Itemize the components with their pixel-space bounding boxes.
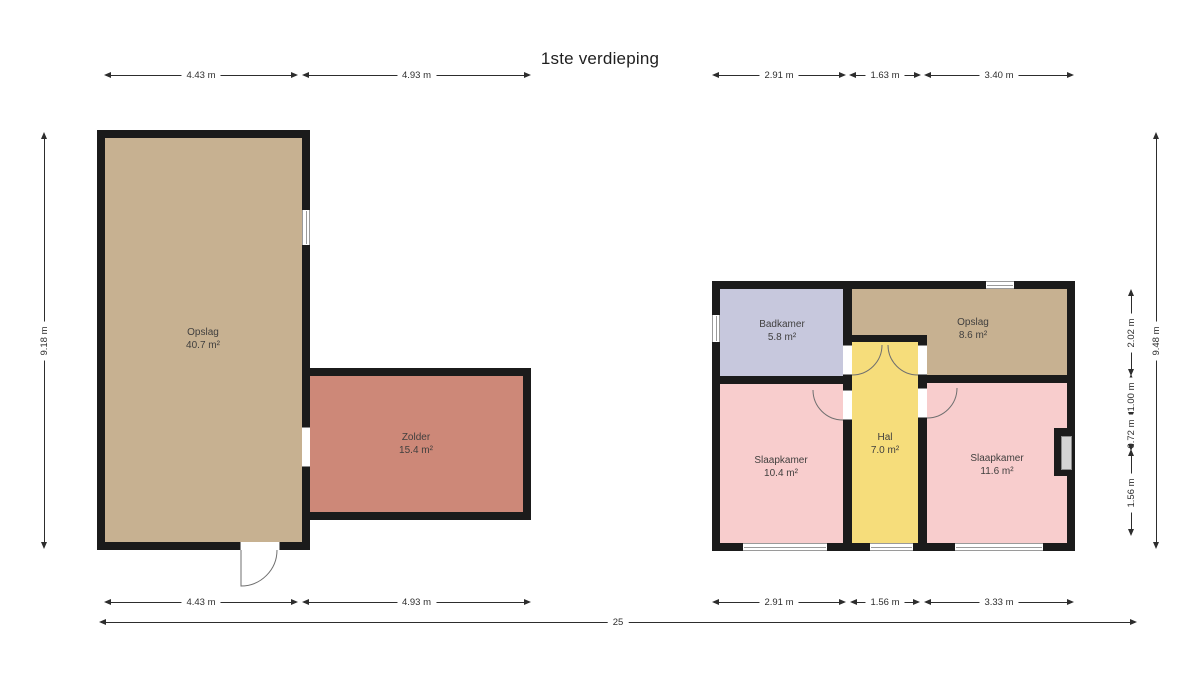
window-opslag-right-top <box>986 281 1014 289</box>
dim-label: 9.48 m <box>1151 321 1163 360</box>
dim-right-seg-3: 0.72 m <box>1127 418 1136 450</box>
dim-label: 3.40 m <box>979 70 1018 82</box>
page-title: 1ste verdieping <box>0 49 1200 69</box>
room-area: 7.0 m² <box>825 444 945 457</box>
window-opslag-right-wall <box>302 210 310 245</box>
window-slaapkamer-right-bottom <box>955 543 1043 551</box>
wall-hal-top <box>852 335 918 342</box>
dim-label: 25 <box>608 617 629 629</box>
dim-bottom-right-1: 2.91 m <box>713 598 845 607</box>
room-name: Zolder <box>356 431 476 444</box>
door-opening-opslag-exterior <box>240 542 280 550</box>
dim-bottom-right-3: 3.33 m <box>925 598 1073 607</box>
dim-label: 0.72 m <box>1126 414 1138 453</box>
dim-top-left-1: 4.43 m <box>105 71 297 80</box>
dim-overall-width: 25 <box>100 618 1136 627</box>
room-label-opslag-left: Opslag 40.7 m² <box>143 326 263 352</box>
room-label-hal: Hal 7.0 m² <box>825 431 945 457</box>
room-label-badkamer: Badkamer 5.8 m² <box>722 318 842 344</box>
dim-label: 2.91 m <box>759 597 798 609</box>
dim-label: 2.91 m <box>759 70 798 82</box>
dim-bottom-left-2: 4.93 m <box>303 598 530 607</box>
room-area: 11.6 m² <box>937 465 1057 478</box>
dim-top-left-2: 4.93 m <box>303 71 530 80</box>
dim-top-right-3: 3.40 m <box>925 71 1073 80</box>
dim-label: 1.00 m <box>1126 377 1138 416</box>
dim-right-seg-4: 1.56 m <box>1127 450 1136 535</box>
room-area: 5.8 m² <box>722 331 842 344</box>
room-area: 40.7 m² <box>143 339 263 352</box>
dim-right-total: 9.48 m <box>1152 133 1161 548</box>
door-opening-opslag-zolder <box>302 427 310 467</box>
door-arc-exterior <box>241 550 277 586</box>
room-label-opslag-right: Opslag 8.6 m² <box>913 316 1033 342</box>
dim-label: 4.43 m <box>181 597 220 609</box>
dim-label: 2.02 m <box>1126 313 1138 352</box>
room-area: 15.4 m² <box>356 444 476 457</box>
dim-label: 9.18 m <box>39 321 51 360</box>
window-slaapkamer-left-bottom <box>743 543 827 551</box>
door-opening-hal-slaapkamer-left <box>843 390 852 420</box>
room-name: Opslag <box>143 326 263 339</box>
room-name: Hal <box>825 431 945 444</box>
window-badkamer-left <box>712 315 720 342</box>
room-label-zolder: Zolder 15.4 m² <box>356 431 476 457</box>
room-name: Slaapkamer <box>721 454 841 467</box>
dim-right-seg-2: 1.00 m <box>1127 375 1136 418</box>
wall-opslag-right-bottom <box>927 375 1067 383</box>
door-opening-hal-opslag <box>918 345 927 375</box>
dim-label: 1.63 m <box>865 70 904 82</box>
dim-top-right-2: 1.63 m <box>850 71 920 80</box>
room-label-slaapkamer-left: Slaapkamer 10.4 m² <box>721 454 841 480</box>
dim-label: 4.93 m <box>397 70 436 82</box>
dim-right-seg-1: 2.02 m <box>1127 290 1136 375</box>
floorplan-page: 1ste verdieping 4.43 m 4.93 m 2.91 m 1.6… <box>0 0 1200 675</box>
room-name: Opslag <box>913 316 1033 329</box>
window-hal-bottom <box>870 543 913 551</box>
dim-bottom-right-2: 1.56 m <box>851 598 919 607</box>
dim-label: 3.33 m <box>979 597 1018 609</box>
dim-label: 4.43 m <box>181 70 220 82</box>
dim-left-height: 9.18 m <box>40 133 49 548</box>
dim-label: 1.56 m <box>865 597 904 609</box>
room-area: 10.4 m² <box>721 467 841 480</box>
room-name: Slaapkamer <box>937 452 1057 465</box>
room-area: 8.6 m² <box>913 329 1033 342</box>
door-opening-badkamer-hal <box>843 345 852 375</box>
dim-top-right-1: 2.91 m <box>713 71 845 80</box>
dim-label: 4.93 m <box>397 597 436 609</box>
door-opening-hal-slaapkamer-right <box>918 388 927 418</box>
dim-bottom-left-1: 4.43 m <box>105 598 297 607</box>
dim-label: 1.56 m <box>1126 473 1138 512</box>
room-label-slaapkamer-right: Slaapkamer 11.6 m² <box>937 452 1057 478</box>
room-name: Badkamer <box>722 318 842 331</box>
niche-pane <box>1061 436 1072 470</box>
wall-badkamer-bottom <box>720 376 843 384</box>
